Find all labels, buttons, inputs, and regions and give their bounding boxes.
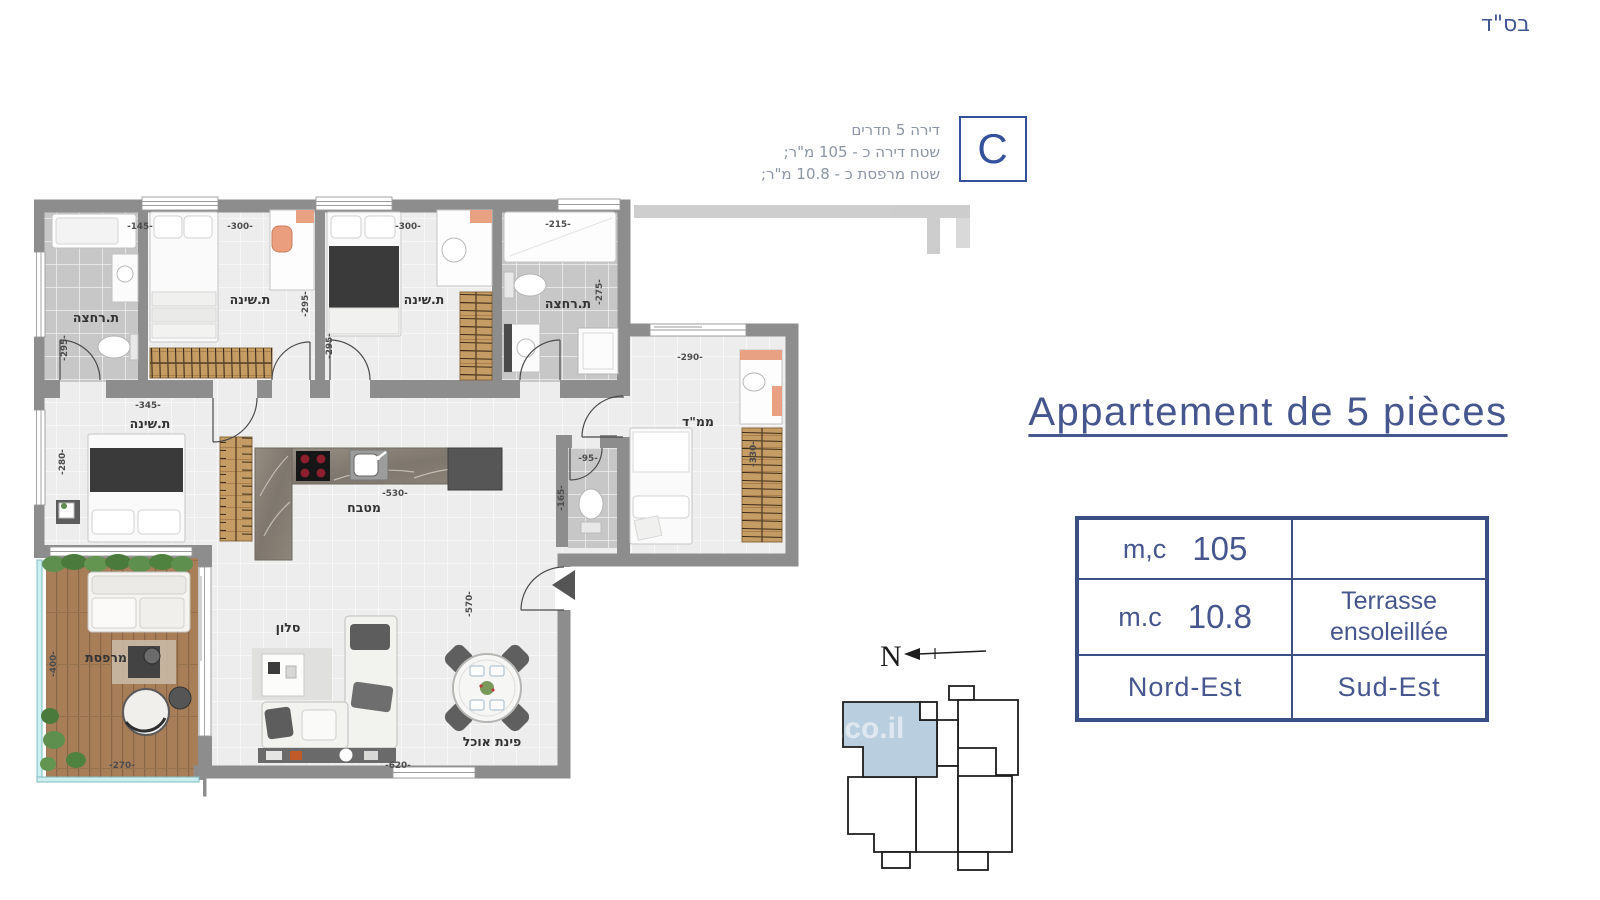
apartment-summary: דירה 5 חדרים שטח דירה כ - 105 מ"ר; שטח מ…: [660, 119, 940, 185]
summary-line-area: שטח דירה כ - 105 מ"ר;: [660, 141, 940, 163]
bsd-text: בס"ד: [1430, 12, 1530, 37]
room-label-master: ת.שינה: [130, 416, 171, 431]
dim-living-h: -570-: [465, 591, 475, 617]
spec-area-label: m,c: [1123, 534, 1167, 565]
watermark-text: .co.il: [836, 712, 904, 745]
spec-area-cell: m,c 105: [1078, 519, 1292, 579]
dim-wc-h: -165-: [557, 485, 567, 511]
sliding-door-terrace: [199, 567, 211, 736]
dim-bed1-h: -295-: [301, 291, 311, 317]
unit-middle: [916, 766, 958, 852]
room-label-bathroom1: ת.רחצה: [73, 310, 119, 325]
room-label-terrace: מרפסת: [85, 650, 127, 665]
dim-bed1-w: -300-: [227, 222, 253, 232]
orientation-left: Nord-Est: [1128, 672, 1243, 703]
wardrobe-bed2: [460, 292, 492, 380]
unit-bottom-right: [958, 776, 1012, 852]
spec-orientation-right-cell: Sud-Est: [1292, 655, 1486, 719]
north-arrow: N: [880, 640, 986, 673]
spec-terrace-label: m.c: [1118, 602, 1162, 633]
window-bed1: [142, 197, 218, 210]
unit-letter-box: C: [959, 116, 1027, 182]
wardrobe-mamad: [742, 428, 782, 542]
summary-line-terrace: שטח מרפסת כ - 10.8 מ"ר;: [660, 163, 940, 185]
spec-terrace-value: 10.8: [1188, 598, 1252, 636]
key-plan: N .co.il: [818, 636, 1030, 880]
room-label-dining: פינת אוכל: [463, 734, 522, 749]
orientation-right: Sud-Est: [1338, 672, 1441, 703]
dim-kitchen-w: -530-: [382, 489, 408, 499]
dim-bath1-h: -295-: [60, 335, 70, 361]
wardrobe-master: [220, 437, 252, 541]
spec-orientation-left-cell: Nord-Est: [1078, 655, 1292, 719]
dim-master-w: -345-: [135, 401, 161, 411]
unit-bottom-left: [848, 777, 916, 852]
room-label-bedroom1: ת.שינה: [230, 292, 271, 307]
terrace-desc-line1: Terrasse: [1341, 586, 1437, 617]
room-label-kitchen: מטבח: [347, 500, 381, 515]
dining-set: [442, 642, 532, 734]
neighbour-walls: [634, 205, 970, 254]
dim-terrace-h: -400-: [49, 651, 59, 677]
window-master-left: [34, 410, 45, 505]
dim-terrace-w: -270-: [109, 761, 135, 771]
summary-line-rooms: דירה 5 חדרים: [660, 119, 940, 141]
dim-bed2-h: -295-: [325, 333, 335, 359]
tv-console: [258, 748, 396, 763]
dim-living-w: -620-: [385, 761, 411, 771]
dim-bath2-h: -275-: [595, 279, 605, 305]
wardrobe-bed1: [150, 348, 272, 378]
dim-bed2-w: -300-: [395, 222, 421, 232]
dim-wc-w: -95-: [578, 454, 598, 464]
room-label-bathroom2: ת.רחצה: [545, 296, 591, 311]
sink-icon: [350, 450, 388, 480]
window-mamad: [650, 324, 746, 336]
dim-bath2-w: -215-: [545, 220, 571, 230]
dim-mamad-w: -290-: [677, 353, 703, 363]
spec-terrace-desc-cell: Terrasse ensoleillée: [1292, 579, 1486, 655]
dim-mamad-h: -330-: [749, 441, 759, 467]
room-label-bedroom2: ת.שינה: [404, 292, 445, 307]
room-label-mamad: ממ"ד: [682, 414, 714, 429]
stair-core: [937, 720, 958, 766]
dim-master-h: -280-: [58, 449, 68, 475]
terrace-desc-line2: ensoleillée: [1330, 617, 1448, 648]
room-label-salon: סלון: [276, 620, 301, 635]
window-bath2: [558, 199, 620, 210]
unit-top-right: [958, 700, 1018, 775]
spec-empty-cell: [1292, 519, 1486, 579]
north-letter: N: [880, 640, 902, 673]
unit-letter: C: [977, 125, 1008, 173]
page-title: Appartement de 5 pièces: [1010, 390, 1526, 435]
spec-area-value: 105: [1192, 530, 1247, 568]
wc-fixtures: [579, 489, 603, 533]
spec-table: m,c 105 m.c 10.8 Terrasse ensoleillée No…: [1075, 516, 1489, 722]
dim-bath1-w: -145-: [127, 222, 153, 232]
window-bath1-left: [34, 252, 45, 337]
cooktop-icon: [296, 451, 330, 481]
spec-terrace-cell: m.c 10.8: [1078, 579, 1292, 655]
window-bed2: [316, 197, 392, 210]
